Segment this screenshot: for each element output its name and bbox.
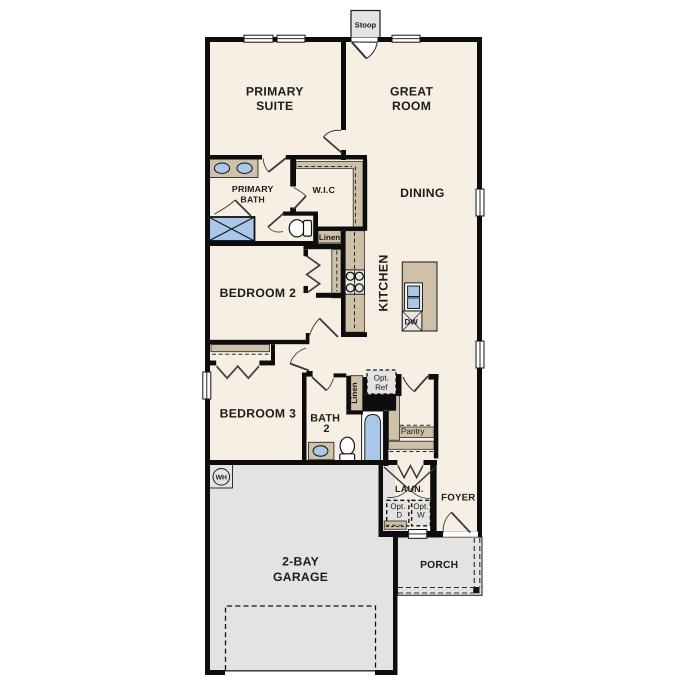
svg-text:BATH: BATH <box>240 195 265 205</box>
svg-text:LAUN.: LAUN. <box>395 484 424 494</box>
svg-text:Pantry: Pantry <box>401 427 426 436</box>
svg-text:BEDROOM 3: BEDROOM 3 <box>220 406 297 420</box>
svg-text:ROOM: ROOM <box>392 99 431 113</box>
svg-text:GARAGE: GARAGE <box>273 570 328 584</box>
svg-text:FOYER: FOYER <box>441 493 475 504</box>
svg-text:Stoop: Stoop <box>355 20 377 29</box>
svg-text:Ref: Ref <box>375 383 388 392</box>
svg-text:Linen: Linen <box>319 233 340 242</box>
svg-text:W.I.C: W.I.C <box>313 185 336 195</box>
svg-text:KITCHEN: KITCHEN <box>377 254 391 311</box>
svg-text:D: D <box>396 511 402 520</box>
svg-text:Opt.: Opt. <box>374 374 389 383</box>
svg-text:DINING: DINING <box>400 186 444 200</box>
svg-text:2-BAY: 2-BAY <box>282 555 319 569</box>
svg-text:2: 2 <box>323 423 329 435</box>
svg-text:BEDROOM 2: BEDROOM 2 <box>220 286 297 300</box>
svg-text:PORCH: PORCH <box>420 560 458 571</box>
svg-text:GREAT: GREAT <box>390 84 434 98</box>
svg-text:PRIMARY: PRIMARY <box>246 85 304 99</box>
svg-text:DW: DW <box>405 318 419 327</box>
svg-text:W: W <box>417 511 425 520</box>
svg-text:PRIMARY: PRIMARY <box>232 184 274 194</box>
svg-text:Linen: Linen <box>350 382 359 403</box>
svg-text:WH: WH <box>216 474 227 481</box>
svg-text:SUITE: SUITE <box>256 99 293 113</box>
